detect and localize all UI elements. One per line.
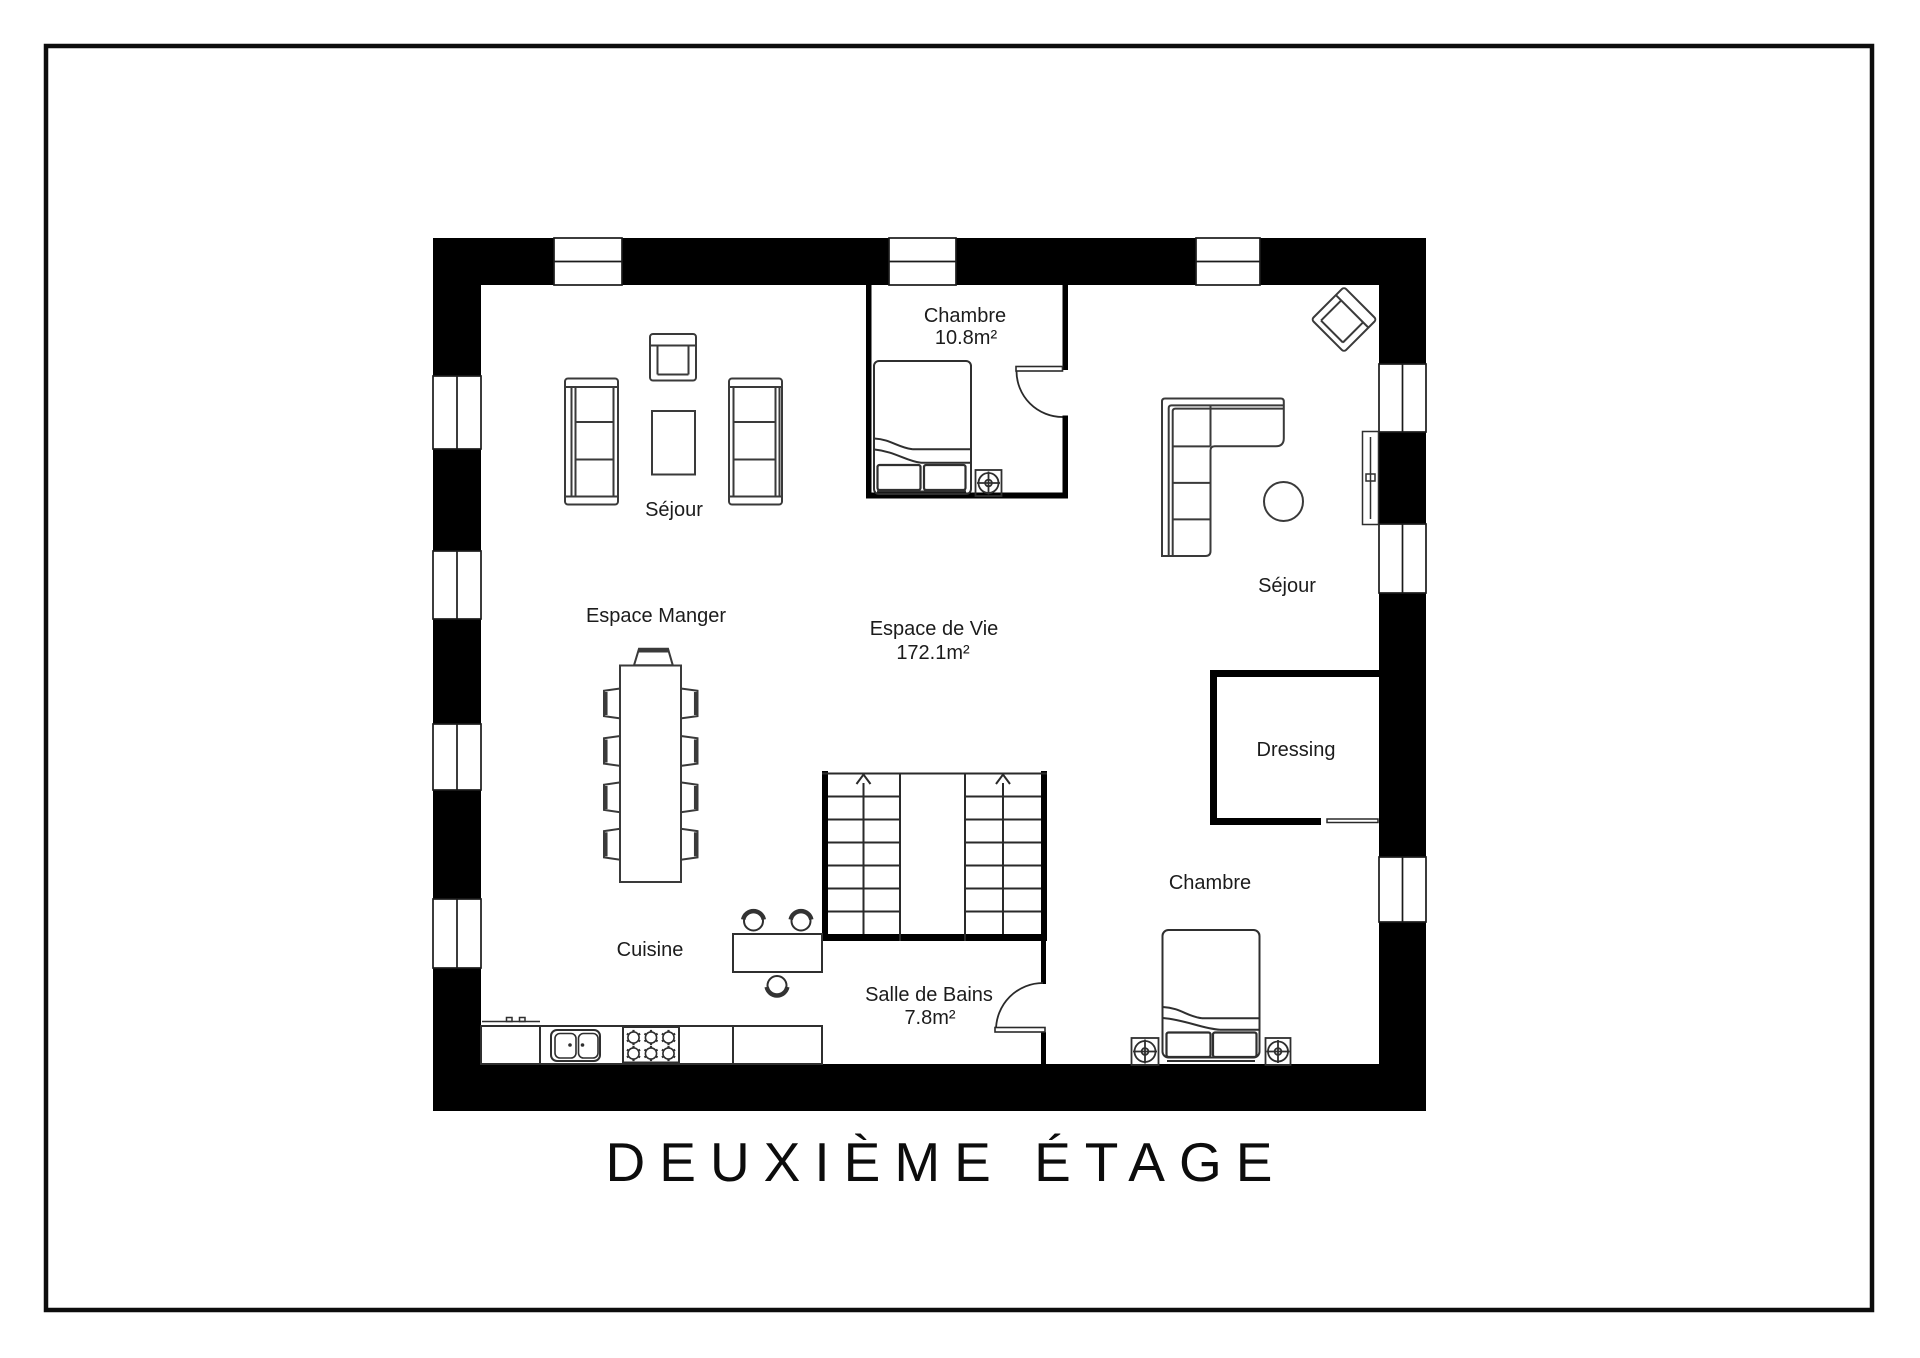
svg-text:Séjour: Séjour	[645, 499, 703, 521]
svg-text:Chambre: Chambre	[924, 305, 1006, 327]
svg-text:Espace Manger: Espace Manger	[586, 605, 726, 627]
svg-text:DEUXIÈME ÉTAGE: DEUXIÈME ÉTAGE	[606, 1131, 1287, 1193]
svg-text:Cuisine: Cuisine	[617, 939, 684, 961]
svg-text:10.8m²: 10.8m²	[935, 327, 998, 349]
svg-text:Chambre: Chambre	[1169, 872, 1251, 894]
svg-text:7.8m²: 7.8m²	[904, 1007, 955, 1029]
svg-text:172.1m²: 172.1m²	[896, 642, 970, 664]
svg-text:Espace de Vie: Espace de Vie	[870, 618, 999, 640]
svg-text:Dressing: Dressing	[1257, 739, 1336, 761]
svg-text:Salle de Bains: Salle de Bains	[865, 984, 993, 1006]
svg-text:Séjour: Séjour	[1258, 575, 1316, 597]
